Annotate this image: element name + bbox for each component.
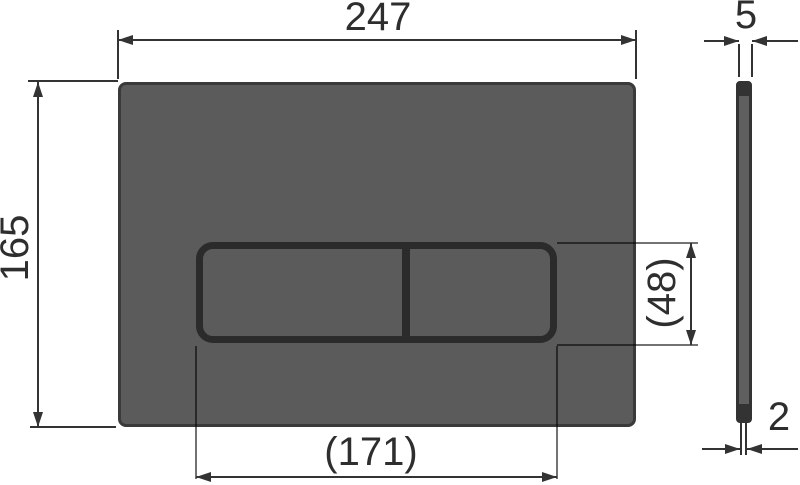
dim-label-thickness: 5 bbox=[735, 0, 757, 35]
dim-label-protrusion: 2 bbox=[768, 397, 790, 437]
ext-line-button-width-right bbox=[556, 346, 558, 479]
ext-line-protrusion-left bbox=[740, 423, 742, 455]
arrowhead-width-right bbox=[621, 35, 636, 45]
arrowhead-button-width-right bbox=[542, 472, 557, 482]
dual-flush-button-outline bbox=[196, 242, 557, 343]
ext-line-thickness-left bbox=[738, 44, 740, 77]
side-view-bottom-cap bbox=[739, 404, 749, 421]
ext-line-button-width-left bbox=[195, 346, 197, 479]
arrowhead-height-bottom bbox=[33, 412, 43, 427]
arrowhead-protrusion-left bbox=[725, 444, 740, 454]
arrowhead-thickness-left bbox=[724, 36, 739, 46]
ext-line-button-height-top bbox=[557, 242, 698, 244]
arrowhead-height-top bbox=[33, 82, 43, 97]
arrowhead-button-width-left bbox=[196, 472, 211, 482]
side-view-top-cap bbox=[739, 83, 749, 96]
dim-label-button-height: (48) bbox=[642, 257, 682, 328]
arrowhead-button-height-bottom bbox=[686, 330, 696, 345]
flush-plate-side-view bbox=[736, 81, 752, 423]
dim-line-height bbox=[37, 82, 39, 427]
flush-button-divider bbox=[402, 246, 410, 339]
dim-label-button-width: (171) bbox=[324, 432, 417, 472]
dim-line-width bbox=[118, 39, 636, 41]
dim-label-plate-width: 247 bbox=[345, 0, 412, 37]
arrowhead-width-left bbox=[118, 35, 133, 45]
arrowhead-thickness-right bbox=[752, 36, 767, 46]
ext-line-button-height-bottom bbox=[557, 344, 698, 346]
dim-line-button-width bbox=[196, 476, 557, 478]
ext-line-thickness-right bbox=[751, 44, 753, 77]
dim-label-plate-height: 165 bbox=[0, 215, 35, 282]
arrowhead-protrusion-right bbox=[747, 444, 762, 454]
arrowhead-button-height-top bbox=[686, 243, 696, 258]
technical-drawing-canvas: 247 165 (171) (48) 5 2 bbox=[0, 0, 800, 485]
